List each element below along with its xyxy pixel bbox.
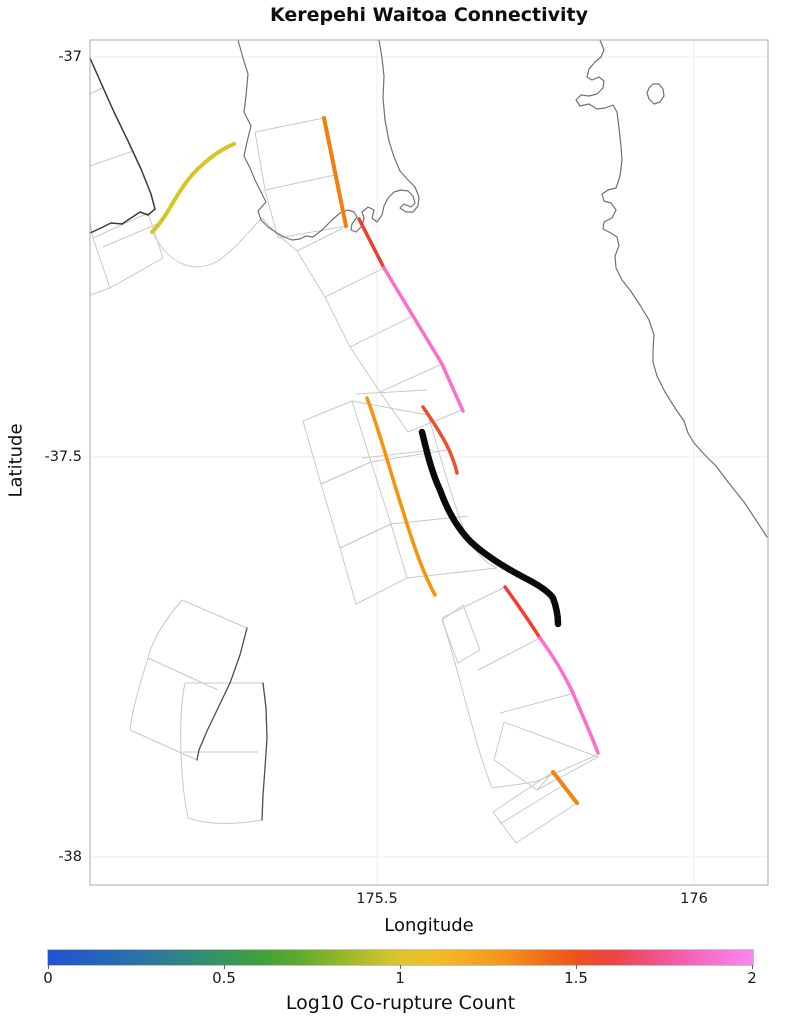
colorbar-label: Log10 Co-rupture Count (48, 992, 753, 1014)
fault-polygon-mesh (380, 364, 442, 392)
fault-polygon-mesh (148, 600, 182, 658)
fault-polygon-mesh (130, 730, 197, 760)
y-tick-label: -37 (12, 49, 82, 65)
trace-red-north (359, 219, 384, 268)
x-tick-label: 176 (659, 891, 729, 907)
x-tick-label: 175.5 (342, 891, 412, 907)
fault-polygon-mesh (442, 618, 492, 788)
x-axis-label: Longitude (90, 915, 768, 936)
trace-black-waitoa (422, 432, 558, 624)
trace-red-south (505, 587, 540, 638)
fault-polygon-mesh (493, 772, 577, 843)
colorbar-gradient (48, 950, 753, 965)
colorbar-tick-label: 0.5 (194, 969, 254, 987)
dark-fault-trace-southwest (262, 683, 267, 820)
fault-polygon-mesh (130, 658, 148, 730)
fault-polygon-mesh (340, 524, 407, 604)
fault-polygon-mesh (93, 213, 163, 288)
fault-polygon-mesh (303, 401, 371, 484)
fault-polygon-mesh (442, 588, 503, 618)
fault-polygon-mesh (90, 288, 110, 295)
dark-fault-trace-west (90, 58, 155, 209)
fault-polygon-mesh (350, 316, 413, 347)
fault-polygon-mesh (500, 786, 562, 824)
fault-polygon-mesh (407, 568, 497, 578)
fault-polygon-mesh (500, 694, 571, 713)
fault-polygon-mesh (90, 87, 104, 94)
coastline (647, 84, 664, 104)
colorbar-tick-label: 0 (18, 969, 78, 987)
y-axis-label: Latitude (6, 361, 27, 561)
colorbar-tick-label: 2 (722, 969, 782, 987)
y-tick-label: -38 (12, 849, 82, 865)
fault-polygon-mesh (321, 462, 391, 548)
coastline (576, 40, 767, 537)
fault-polygon-mesh (255, 118, 324, 132)
trace-pink-north (384, 268, 463, 411)
trace-orange-north (324, 118, 346, 226)
trace-yellow (152, 144, 234, 232)
colorbar-tick-label: 1.5 (546, 969, 606, 987)
figure: Kerepehi Waitoa Connectivity -37 -37.5 -… (0, 0, 800, 1031)
fault-polygon-mesh (148, 658, 218, 690)
fault-polygon-mesh (103, 224, 157, 247)
fault-polygon-mesh (90, 151, 133, 166)
fault-polygon-mesh (352, 401, 428, 415)
fault-polygon-mesh (265, 175, 335, 190)
fault-polygon-mesh (478, 638, 540, 670)
fault-polygon-mesh (442, 605, 480, 663)
colorbar-tick-label: 1 (370, 969, 430, 987)
dark-fault-trace-southwest (197, 628, 247, 760)
fault-polygon-mesh (181, 683, 188, 818)
fault-polygon-mesh (153, 218, 262, 267)
trace-orange-south (553, 772, 577, 803)
fault-polygon-mesh (325, 268, 384, 297)
fault-polygon-mesh (188, 818, 262, 824)
trace-pink-south (540, 638, 598, 753)
fault-polygon-mesh (492, 782, 535, 788)
fault-polygon-mesh (182, 600, 247, 628)
map-svg (0, 0, 800, 940)
fault-polygon-mesh (356, 390, 427, 394)
